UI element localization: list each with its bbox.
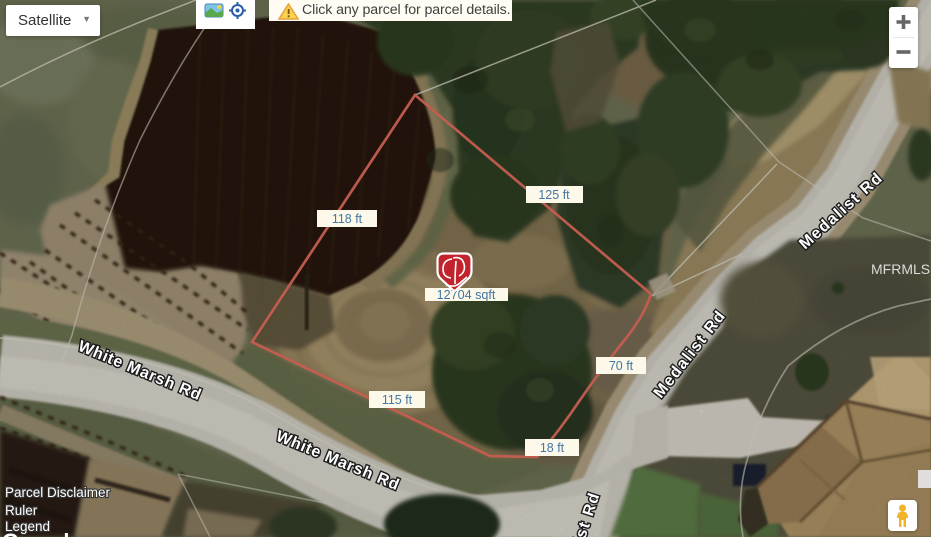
svg-text:Parcel Disclaimer: Parcel Disclaimer — [5, 485, 111, 500]
svg-text:12704 sqft: 12704 sqft — [437, 288, 496, 302]
svg-text:White Marsh Rd: White Marsh Rd — [75, 338, 204, 404]
svg-text:118 ft: 118 ft — [332, 212, 363, 226]
svg-text:18 ft: 18 ft — [540, 441, 565, 455]
svg-text:Ruler: Ruler — [5, 503, 38, 518]
svg-text:Google: Google — [2, 529, 84, 537]
svg-text:MFRMLS: MFRMLS — [871, 261, 930, 277]
svg-text:70 ft: 70 ft — [609, 359, 634, 373]
svg-text:115 ft: 115 ft — [382, 393, 413, 407]
svg-text:White Marsh Rd: White Marsh Rd — [273, 428, 402, 494]
svg-text:125 ft: 125 ft — [538, 188, 570, 202]
svg-text:Medalist Rd: Medalist Rd — [796, 169, 886, 253]
svg-text:Medalist Rd: Medalist Rd — [651, 307, 730, 401]
svg-text:Medalist Rd: Medalist Rd — [555, 490, 604, 537]
